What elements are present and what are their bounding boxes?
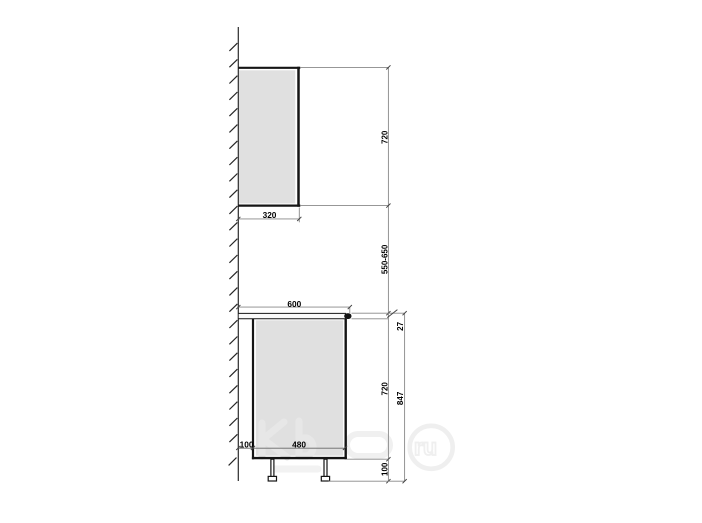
svg-text:480: 480: [292, 440, 306, 450]
svg-text:550-650: 550-650: [380, 244, 389, 274]
svg-text:320: 320: [263, 210, 277, 220]
svg-text:847: 847: [396, 391, 405, 405]
svg-text:100: 100: [240, 440, 254, 450]
svg-text:27: 27: [396, 321, 405, 330]
svg-text:ru: ru: [414, 434, 437, 460]
svg-text:600: 600: [287, 299, 301, 309]
svg-text:720: 720: [380, 382, 389, 396]
svg-text:100: 100: [381, 462, 390, 476]
svg-text:720: 720: [380, 130, 389, 144]
